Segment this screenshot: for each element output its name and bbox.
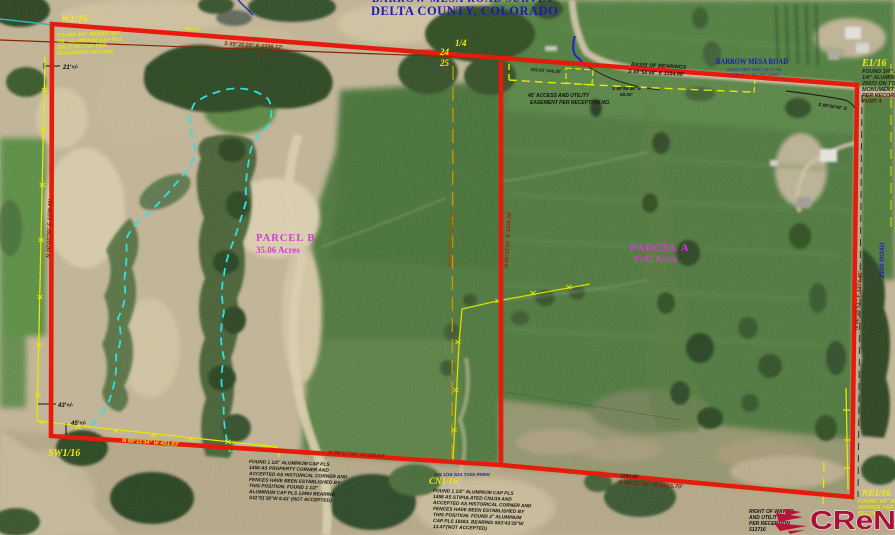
svg-text:35.02 Acres: 35.02 Acres bbox=[633, 254, 677, 264]
svg-text:COUNTY ROAD 2100: COUNTY ROAD 2100 bbox=[730, 72, 779, 77]
svg-text:SW 1/16 S24 T15S R95W: SW 1/16 S24 T15S R95W bbox=[434, 472, 490, 478]
svg-text:25: 25 bbox=[439, 58, 450, 68]
svg-text:1/4: 1/4 bbox=[455, 38, 467, 48]
svg-text:PARCEL A: PARCEL A bbox=[630, 243, 689, 254]
svg-text:BARROW MESA ROAD: BARROW MESA ROAD bbox=[716, 56, 788, 66]
svg-text:59.00': 59.00' bbox=[620, 92, 633, 97]
svg-text:W1/16: W1/16 bbox=[61, 14, 88, 25]
svg-text:DELTA COUNTY, COLORADO: DELTA COUNTY, COLORADO bbox=[371, 4, 558, 18]
svg-text:2100 ROAD: 2100 ROAD bbox=[879, 242, 886, 279]
svg-text:35.06 Acres: 35.06 Acres bbox=[256, 245, 300, 255]
svg-text:E1/16: E1/16 bbox=[861, 58, 886, 69]
svg-text:43'+/-: 43'+/- bbox=[57, 403, 73, 409]
svg-text:PVMT 4: PVMT 4 bbox=[862, 99, 881, 105]
svg-text:SW1/16: SW1/16 bbox=[48, 448, 80, 459]
svg-text:45' ACCESS AND UTILITY: 45' ACCESS AND UTILITY bbox=[527, 93, 590, 99]
svg-text:659.37': 659.37' bbox=[184, 26, 202, 33]
svg-text:513716: 513716 bbox=[749, 527, 766, 533]
svg-text:EASEMENT PER RECEPTION NO.: EASEMENT PER RECEPTION NO. bbox=[530, 100, 610, 106]
svg-text:21'+/-: 21'+/- bbox=[62, 65, 78, 71]
svg-text:45'+/-: 45'+/- bbox=[70, 421, 86, 427]
svg-text:24: 24 bbox=[439, 47, 450, 57]
svg-text:PARCEL B: PARCEL B bbox=[256, 233, 315, 244]
svg-text:NE1/16: NE1/16 bbox=[861, 488, 891, 498]
svg-text:S 89°58'48" E: S 89°58'48" E bbox=[612, 86, 642, 91]
svg-text:CReN: CReN bbox=[810, 505, 895, 535]
